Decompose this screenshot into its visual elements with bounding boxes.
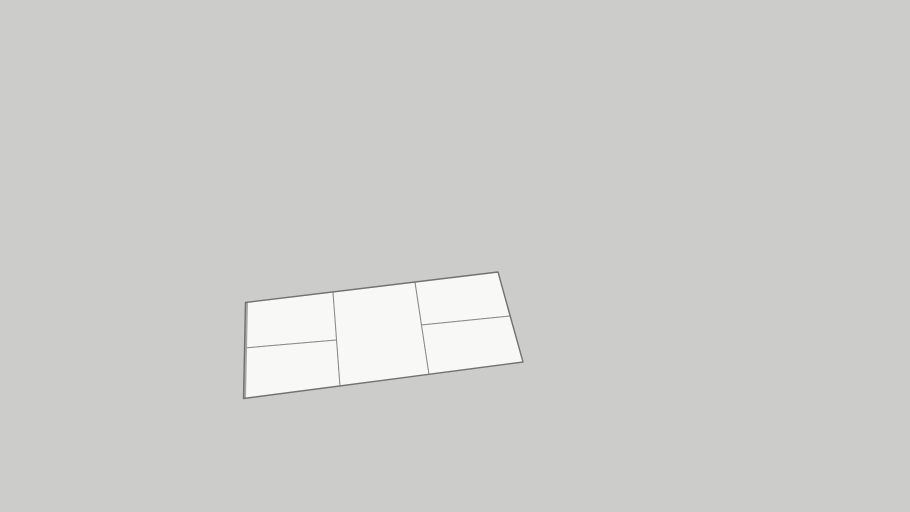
orbit-viewport[interactable] [0, 0, 910, 512]
model-viewer [0, 0, 910, 512]
model-scene [0, 0, 910, 512]
panel-middle [333, 282, 429, 386]
panel-left-bottom [244, 340, 341, 399]
panel-right-bottom [422, 316, 524, 374]
